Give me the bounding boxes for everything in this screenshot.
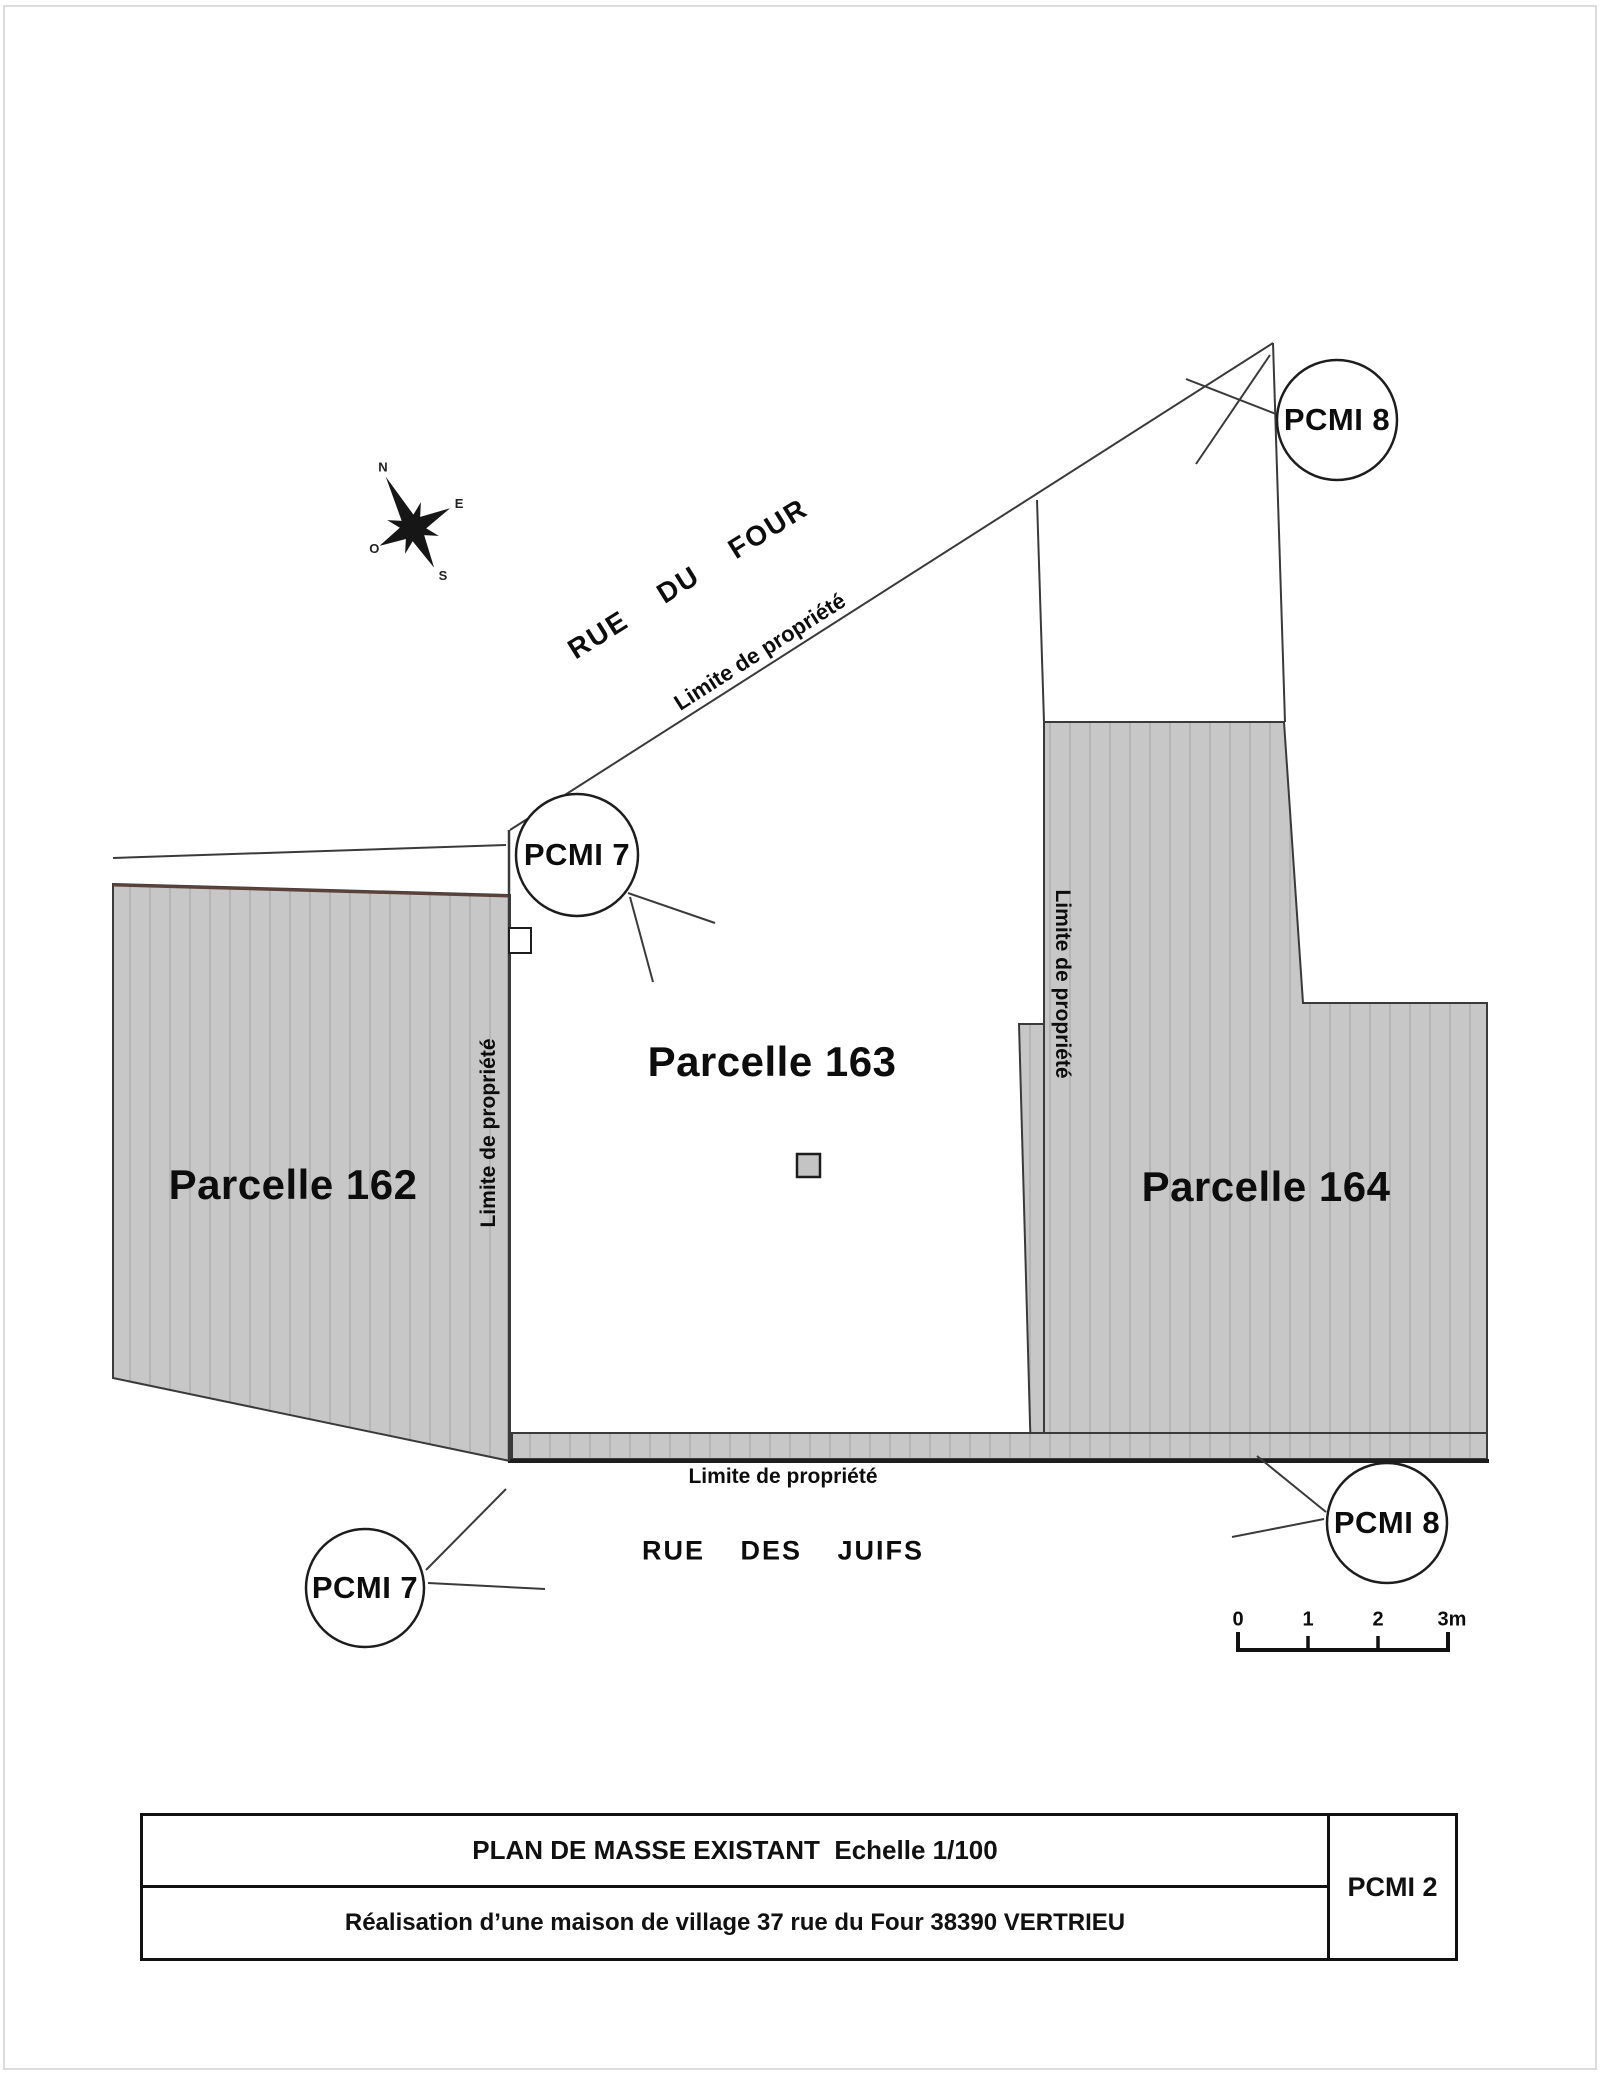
- leader-pcmi8-top-2: [1196, 355, 1270, 464]
- scale-tick-0: 0: [1232, 1609, 1243, 1632]
- scale-tick-1: 1: [1302, 1609, 1313, 1632]
- small-structure-square: [797, 1154, 820, 1177]
- north-line-above-162: [113, 845, 506, 858]
- compass-east-label: E: [455, 496, 464, 511]
- parcel-163-label: Parcelle 163: [648, 1038, 897, 1086]
- pcmi8-top-label: PCMI 8: [1284, 402, 1390, 438]
- scale-tick-2: 2: [1372, 1609, 1383, 1632]
- leader-pcmi7-top-2: [630, 897, 653, 982]
- leader-pcmi8-bottom-2: [1232, 1519, 1324, 1537]
- pcmi8-bottom-label: PCMI 8: [1334, 1505, 1440, 1541]
- scale-tick-3m: 3m: [1438, 1609, 1467, 1632]
- leader-pcmi7-bottom-2: [428, 1583, 545, 1589]
- compass-rose-icon: N E S O: [331, 432, 496, 609]
- parcel-164-label: Parcelle 164: [1142, 1163, 1391, 1211]
- property-limit-label-middle: Limite de propriété: [1050, 889, 1074, 1078]
- boundary-163-164-upper: [1037, 500, 1044, 722]
- strip-rue-des-juifs: [512, 1433, 1487, 1459]
- plan-reference: PCMI 2: [1327, 1816, 1455, 1958]
- leader-pcmi7-bottom-1: [426, 1489, 506, 1570]
- parcel-162-label: Parcelle 162: [169, 1161, 418, 1209]
- leader-pcmi8-bottom-1: [1257, 1456, 1326, 1512]
- leader-pcmi8-top-1: [1186, 379, 1276, 414]
- site-plan-page: N E S O RUE DU FOUR Limite de propriété …: [0, 0, 1600, 2073]
- strip-163-164: [1019, 1024, 1044, 1459]
- compass-north-label: N: [378, 459, 387, 474]
- leader-pcmi7-top-1: [628, 893, 715, 923]
- plan-subtitle: Réalisation d’une maison de village 37 r…: [143, 1888, 1327, 1958]
- street-label-rue-des-juifs: RUE DES JUIFS: [642, 1536, 924, 1567]
- compass-south-label: S: [439, 568, 448, 583]
- compass-west-label: O: [369, 541, 379, 556]
- property-limit-label-bottom: Limite de propriété: [688, 1465, 877, 1489]
- title-block-left: PLAN DE MASSE EXISTANT Echelle 1/100 Réa…: [143, 1816, 1327, 1958]
- title-block: PLAN DE MASSE EXISTANT Echelle 1/100 Réa…: [140, 1813, 1458, 1961]
- pcmi7-top-label: PCMI 7: [524, 837, 630, 873]
- plan-drawing: N E S O: [0, 0, 1600, 2073]
- boundary-notch: [509, 928, 531, 953]
- pcmi7-bottom-label: PCMI 7: [312, 1570, 418, 1606]
- plan-title: PLAN DE MASSE EXISTANT Echelle 1/100: [143, 1816, 1327, 1888]
- parcel-164-area: [1044, 722, 1487, 1459]
- property-limit-label-left: Limite de propriété: [477, 1038, 501, 1227]
- scale-bar: [1236, 1632, 1450, 1652]
